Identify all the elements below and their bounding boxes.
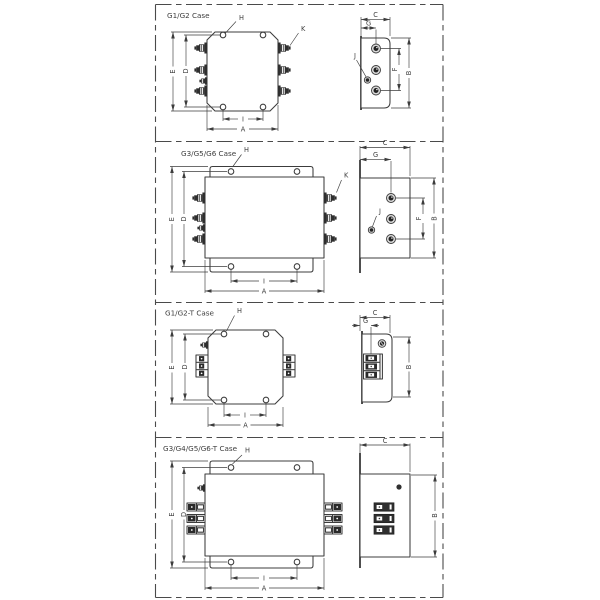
terminal-bolt-icon [324, 213, 337, 224]
terminal-block-icon [374, 526, 394, 534]
mounting-hole-icon [263, 331, 269, 337]
svg-text:I: I [263, 574, 265, 582]
svg-text:F: F [391, 67, 399, 71]
dim-i: I [224, 404, 266, 420]
front-view: H K E D I A [168, 146, 349, 295]
leader-h [226, 22, 237, 34]
mounting-hole-icon [260, 104, 266, 110]
mounting-hole-icon [294, 465, 300, 471]
stud-end-view-icon [387, 215, 396, 224]
dim-label-k: K [344, 172, 349, 180]
mounting-hole-icon [260, 32, 266, 38]
case-body [208, 330, 283, 404]
svg-text:D: D [180, 216, 188, 221]
panel-g3g4g5g6-t-case: G3/G4/G5/G6-T Case H E D [163, 437, 439, 593]
svg-text:F: F [415, 216, 423, 220]
terminal-block-icon [187, 515, 205, 523]
terminal-block-icon [283, 355, 295, 377]
mounting-hole-icon [228, 169, 234, 175]
svg-text:G: G [366, 20, 371, 28]
side-view: J C G B F [353, 11, 413, 110]
svg-text:A: A [262, 584, 267, 592]
mounting-hole-icon [221, 331, 227, 337]
leader-k [290, 33, 299, 46]
stud-end-view-icon [372, 66, 381, 75]
svg-text:C: C [383, 437, 388, 445]
panel-g1g2-case: G1/G2 Case H K E D [167, 11, 413, 133]
panel-g1g2-t-case: G1/G2-T Case H E D I A [165, 307, 413, 429]
svg-text:C: C [373, 11, 378, 19]
svg-text:C: C [373, 309, 378, 317]
svg-text:B: B [431, 513, 439, 518]
dim-c: C [360, 139, 410, 176]
terminal-bolt-icon [278, 86, 291, 97]
terminal-block-icon [374, 503, 394, 511]
svg-text:E: E [168, 365, 176, 369]
stud-end-view-icon [372, 44, 381, 53]
dim-label-h: H [239, 14, 244, 22]
mounting-hole-icon [263, 397, 269, 403]
panel-title: G3/G5/G6 Case [181, 149, 237, 158]
panel-title: G1/G2 Case [167, 11, 210, 20]
ground-stud-icon [197, 224, 205, 231]
case-body [205, 177, 324, 258]
terminal-bolt-icon [278, 43, 291, 54]
ground-stud-icon [368, 227, 374, 233]
case-body [207, 32, 278, 111]
terminal-block-icon [324, 515, 342, 523]
mounting-hole-icon [220, 32, 226, 38]
svg-text:C: C [383, 139, 388, 147]
terminal-block-icon [364, 354, 383, 379]
case-side [360, 178, 410, 258]
svg-text:B: B [430, 216, 438, 221]
dim-label-j: J [353, 52, 356, 60]
dim-label-k: K [301, 25, 306, 33]
svg-text:A: A [241, 125, 246, 133]
front-view: H E D I A [168, 447, 342, 593]
dim-label-j: J [378, 208, 381, 216]
svg-text:D: D [180, 512, 188, 517]
mounting-hole-icon [228, 559, 234, 565]
svg-text:E: E [168, 512, 176, 516]
side-view: C B [360, 437, 439, 568]
svg-text:B: B [405, 70, 413, 75]
panel-g3g5g6-case: G3/G5/G6 Case H K E D [168, 139, 438, 295]
terminal-block-icon [324, 526, 342, 534]
svg-text:D: D [181, 364, 189, 369]
panel-title: G3/G4/G5/G6-T Case [163, 444, 238, 453]
ground-stud-icon [396, 484, 401, 489]
svg-text:A: A [262, 287, 267, 295]
mounting-hole-icon [228, 465, 234, 471]
terminal-bolt-icon [192, 193, 205, 204]
terminal-bolt-icon [194, 65, 207, 76]
leader-h [227, 316, 235, 332]
drawing-sheet: G1/G2 Case H K E D [0, 0, 600, 600]
dim-label-h: H [237, 307, 242, 315]
case-body [205, 474, 324, 556]
terminal-bolt-icon [192, 213, 205, 224]
front-view: H E D I A [168, 307, 295, 429]
svg-text:G: G [373, 151, 378, 159]
mounting-hole-icon [294, 559, 300, 565]
dim-c: C [360, 437, 410, 472]
svg-text:I: I [244, 411, 246, 419]
stud-end-view-icon [372, 86, 381, 95]
terminal-block-icon [374, 514, 394, 522]
ground-stud-icon [199, 77, 207, 84]
svg-text:B: B [405, 364, 413, 369]
terminal-bolt-icon [194, 86, 207, 97]
panel-title: G1/G2-T Case [165, 309, 214, 318]
front-view: H K E D I A [169, 14, 306, 133]
mounting-hole-icon [221, 397, 227, 403]
side-view: J C G F B [360, 139, 438, 273]
stud-end-view-icon [387, 235, 396, 244]
dim-label-h: H [244, 146, 249, 154]
terminal-bolt-icon [192, 234, 205, 245]
terminal-block-icon [187, 503, 205, 511]
dim-label-h: H [245, 447, 250, 455]
ground-stud-icon [200, 341, 208, 348]
svg-text:E: E [168, 217, 176, 221]
terminal-block-icon [187, 526, 205, 534]
drawing-canvas: G1/G2 Case H K E D [0, 0, 600, 600]
terminal-block-icon [196, 355, 208, 377]
mounting-hole-icon [294, 169, 300, 175]
stud-end-view-icon [387, 194, 396, 203]
terminal-block-icon [324, 503, 342, 511]
svg-text:E: E [169, 69, 177, 73]
mounting-hole-icon [220, 104, 226, 110]
ground-stud-icon [364, 77, 370, 83]
svg-text:I: I [242, 115, 244, 123]
svg-text:I: I [263, 277, 265, 285]
svg-text:A: A [243, 421, 248, 429]
side-view: C G B [352, 309, 413, 404]
leader-k [337, 180, 342, 193]
svg-text:G: G [363, 317, 368, 325]
ground-stud-icon [197, 484, 205, 491]
terminal-bolt-icon [278, 65, 291, 76]
dim-b: B [393, 337, 413, 397]
mounting-hole-icon [228, 264, 234, 270]
svg-text:D: D [182, 68, 190, 73]
terminal-bolt-icon [324, 234, 337, 245]
mounting-hole-icon [294, 264, 300, 270]
dim-b: B [411, 475, 439, 557]
terminal-bolt-icon [194, 43, 207, 54]
dim-i: I [223, 111, 263, 124]
terminal-bolt-icon [324, 193, 337, 204]
